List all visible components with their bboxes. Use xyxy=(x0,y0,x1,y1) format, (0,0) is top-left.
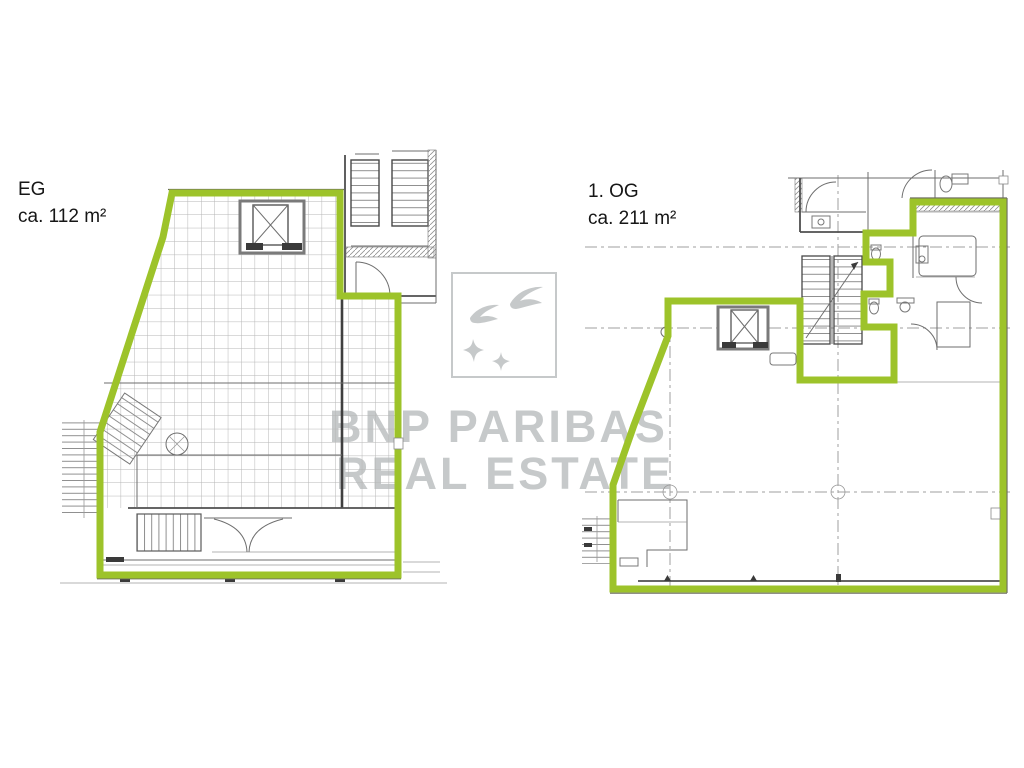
eg-title: EG xyxy=(18,176,106,203)
og-label: 1. OG ca. 211 m² xyxy=(588,178,676,232)
og-reception-desk xyxy=(618,500,687,567)
og-elevator xyxy=(718,307,796,365)
eg-elevator xyxy=(240,201,304,253)
eg-internal-stairs xyxy=(137,514,201,551)
og-floor-plan xyxy=(582,170,1010,593)
og-window-marker xyxy=(991,508,1000,519)
eg-stairwell-block xyxy=(345,150,436,303)
floor-plan-page: BNP PARIBAS REAL ESTATE xyxy=(0,0,1024,768)
og-bottom-inner-wall xyxy=(638,574,1001,582)
eg-area: ca. 112 m² xyxy=(18,203,106,230)
eg-floor-plan xyxy=(60,150,447,583)
eg-entrance-doors xyxy=(214,519,283,552)
eg-exterior-stair-left xyxy=(62,420,100,518)
floor-plans-drawing xyxy=(0,0,1024,768)
eg-window-marker xyxy=(394,438,403,449)
og-area: ca. 211 m² xyxy=(588,205,676,232)
og-staircase xyxy=(802,256,862,344)
og-exterior-stair-left xyxy=(582,516,612,564)
eg-label: EG ca. 112 m² xyxy=(18,176,106,230)
og-title: 1. OG xyxy=(588,178,676,205)
